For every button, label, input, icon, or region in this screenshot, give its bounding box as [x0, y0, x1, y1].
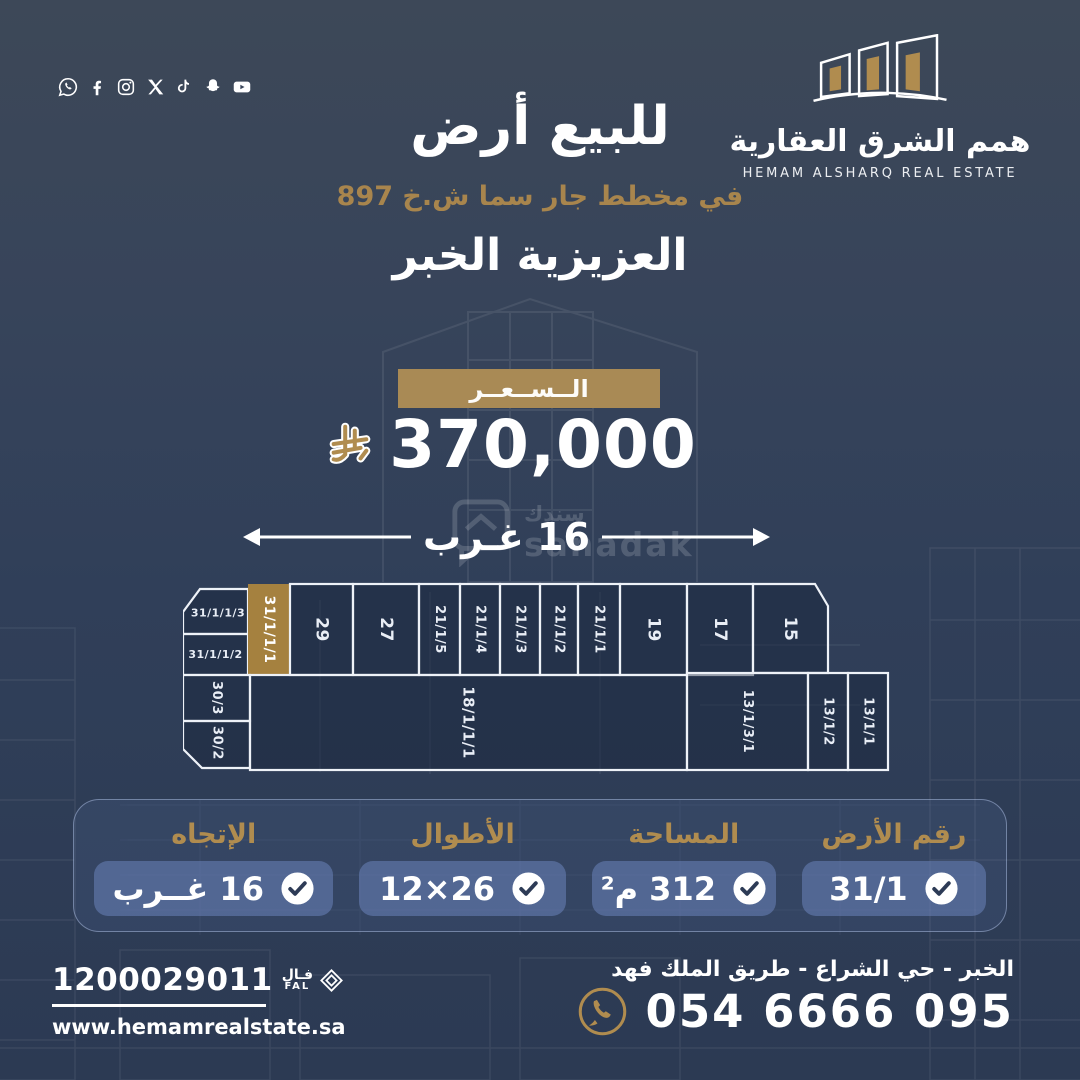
check-icon	[280, 871, 315, 906]
check-icon	[924, 871, 959, 906]
snapchat-icon[interactable]	[202, 76, 224, 98]
divider-line	[52, 1004, 266, 1007]
detail-label: الأطوال	[410, 819, 514, 850]
fal-arabic: فـال	[282, 968, 313, 982]
plan-subtitle: في مخطط جار سما ش.خ 897	[0, 181, 1080, 212]
plot-label-31-1-1-1: 31/1/1/1	[261, 595, 277, 663]
x-icon[interactable]	[144, 76, 166, 98]
footer-right: الخبر - حي الشراع - طريق الملك فهد 054 6…	[576, 957, 1014, 1038]
district-title: العزيزية الخبر	[0, 230, 1080, 281]
plot-label-31-1-1-3: 31/1/1/3	[191, 607, 245, 620]
detail-pill: 16 غــرب	[94, 861, 333, 916]
plot-map: 31/1/1/331/1/1/231/1/1/1292721/1/521/1/4…	[183, 582, 905, 775]
website-link[interactable]: www.hemamrealstate.sa	[52, 1015, 266, 1039]
arrow-left-icon	[243, 523, 411, 551]
social-icons-row	[57, 76, 253, 98]
page-title: للبيع أرض	[0, 99, 1080, 155]
address-line: الخبر - حي الشراع - طريق الملك فهد	[576, 957, 1014, 982]
detail-pill: 312 م²	[592, 861, 776, 916]
check-icon	[511, 871, 546, 906]
detail-pill: 31/1	[802, 861, 986, 916]
detail-label: الإتجاه	[171, 819, 256, 850]
plot-label-21-1-4: 21/1/4	[473, 605, 488, 654]
detail-value: 312 م²	[601, 870, 716, 908]
plot-label-13-1-1: 13/1/1	[861, 697, 876, 746]
footer-left: 1200029011 فـال FAL www.hemamrealstate.s…	[52, 962, 266, 1039]
saudi-riyal-symbol-icon	[327, 422, 373, 468]
plot-label-17: 17	[710, 617, 730, 642]
details-panel: رقم الأرض 31/1 المساحة 312 م²	[73, 799, 1007, 932]
facebook-icon[interactable]	[86, 76, 108, 98]
whatsapp-contact[interactable]: 054 6666 095	[576, 985, 1014, 1038]
detail-item-plot-number: رقم الأرض 31/1	[802, 819, 986, 916]
headline-block: للبيع أرض في مخطط جار سما ش.خ 897 العزيز…	[0, 99, 1080, 281]
fal-diamond-icon	[318, 967, 345, 994]
unified-phone-number[interactable]: 1200029011	[52, 962, 273, 998]
price-value: 370,000	[389, 406, 697, 483]
plot-label-31-1-1-2: 31/1/1/2	[188, 648, 242, 661]
price-label-band: الــســعــر	[398, 369, 660, 408]
tiktok-icon[interactable]	[173, 76, 195, 98]
whatsapp-icon[interactable]	[57, 76, 79, 98]
plot-label-27: 27	[376, 617, 396, 642]
plot-label-19: 19	[644, 617, 664, 642]
whatsapp-icon	[576, 985, 629, 1038]
fal-english: FAL	[284, 982, 310, 992]
arrow-right-icon	[602, 523, 770, 551]
detail-pill: 26×12	[359, 861, 565, 916]
plot-label-29: 29	[312, 617, 332, 642]
detail-value: 16 غــرب	[112, 870, 263, 908]
frontage-label: 16 غـرب	[411, 515, 602, 559]
youtube-icon[interactable]	[231, 76, 253, 98]
detail-item-area: المساحة 312 م²	[592, 819, 776, 916]
plot-label-21-1-1: 21/1/1	[592, 605, 607, 654]
detail-value: 26×12	[379, 870, 495, 908]
whatsapp-number[interactable]: 054 6666 095	[646, 985, 1014, 1038]
plot-label-21-1-5: 21/1/5	[432, 605, 447, 654]
check-icon	[732, 871, 767, 906]
plot-label-18-1-1-1: 18/1/1/1	[460, 686, 478, 759]
plot-label-30-3: 30/3	[209, 681, 224, 715]
fal-license-logo: فـال FAL	[282, 967, 345, 994]
plot-label-21-1-3: 21/1/3	[513, 605, 528, 654]
plot-label-13-1-2: 13/1/2	[821, 697, 836, 746]
real-estate-poster: سندك sanadak همم الشرق العقارية	[0, 0, 1080, 1080]
detail-label: رقم الأرض	[821, 819, 966, 850]
instagram-icon[interactable]	[115, 76, 137, 98]
plot-label-13-1-3-1: 13/1/3/1	[740, 690, 755, 753]
frontage-dimension: 16 غـرب	[243, 512, 748, 562]
detail-item-direction: الإتجاه 16 غــرب	[94, 819, 333, 916]
plot-label-30-2: 30/2	[210, 726, 225, 760]
price-row: 370,000	[0, 406, 1024, 483]
detail-item-dimensions: الأطوال 26×12	[359, 819, 565, 916]
plot-label-15: 15	[780, 617, 800, 642]
detail-label: المساحة	[628, 819, 739, 850]
plot-label-21-1-2: 21/1/2	[552, 605, 567, 654]
detail-value: 31/1	[829, 870, 907, 908]
